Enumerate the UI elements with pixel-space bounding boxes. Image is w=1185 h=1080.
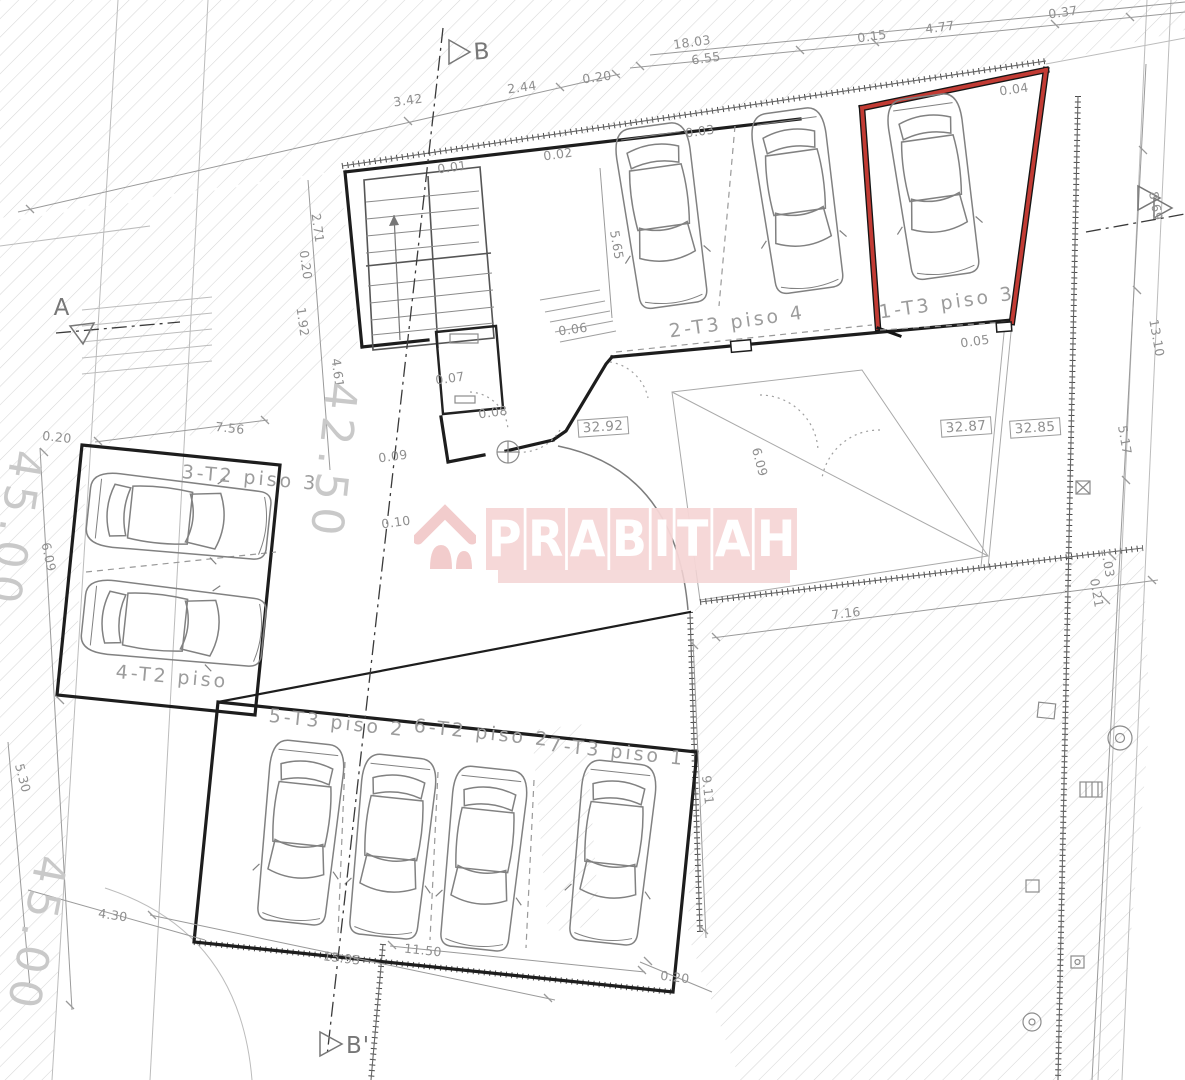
- dim-7-16: 7.16: [830, 604, 861, 622]
- dim-1-92: 1.92: [294, 306, 313, 337]
- dim-0-01: 0.01: [436, 158, 467, 177]
- level-32-87: 32.87: [940, 416, 992, 437]
- dim-8-69: 8.69: [1146, 190, 1166, 222]
- dim-0-10: 0.10: [380, 513, 411, 532]
- dim-15-95: 15.95: [322, 948, 361, 967]
- dim-5-65: 5.65: [607, 229, 627, 261]
- dim-0-04: 0.04: [998, 80, 1029, 99]
- street-level-42-50: 42.50: [299, 379, 367, 544]
- level-32-85: 32.85: [1009, 417, 1061, 438]
- dim-6-09-west: 6.09: [39, 541, 60, 573]
- dim-0-37: 0.37: [1047, 3, 1078, 22]
- section-marker-a: A: [54, 295, 71, 321]
- dim-0-20-west: 0.20: [42, 428, 73, 446]
- dim-5-30: 5.30: [12, 762, 34, 794]
- dim-7-56: 7.56: [215, 419, 246, 437]
- dim-0-05: 0.05: [959, 332, 990, 351]
- dim-0-20-bottom: 0.20: [659, 968, 690, 986]
- space-label-5-t3: 5-T3 piso 2: [268, 705, 406, 741]
- dim-0-03: 0.03: [684, 122, 715, 141]
- dim-1-03: 1.03: [1098, 547, 1118, 579]
- dim-0-21: 0.21: [1087, 577, 1107, 609]
- space-label-2-t3: 2-T3 piso 4: [668, 302, 807, 343]
- dim-18-03: 18.03: [672, 32, 712, 52]
- dim-4-77: 4.77: [924, 18, 955, 37]
- space-label-7-t3: 7-T3 piso 1: [548, 734, 686, 770]
- dim-6-55: 6.55: [690, 49, 721, 68]
- dim-9-11: 9.11: [699, 775, 717, 806]
- floor-plan-page: PRABITAH 18.036.550.154.770.370.203.422.…: [0, 0, 1185, 1080]
- space-label-3-t2: 3-T2 piso 3: [181, 461, 319, 495]
- dim-13-10: 13.10: [1146, 318, 1167, 358]
- street-level-45-00-b: 45.00: [0, 851, 76, 1019]
- dim-0-20-left: 0.20: [297, 249, 316, 280]
- dim-3-42: 3.42: [392, 91, 423, 110]
- space-label-6-t2: 6-T2 piso 2: [413, 715, 551, 751]
- space-label-4-t2: 4-T2 piso: [115, 661, 229, 693]
- street-level-45-00-a: 45.00: [0, 447, 52, 614]
- dim-0-08: 0.08: [477, 403, 508, 422]
- dim-0-07: 0.07: [434, 369, 465, 388]
- space-label-1-t3: 1-T3 piso 3: [878, 283, 1017, 324]
- dim-2-44: 2.44: [506, 78, 537, 97]
- section-marker-b: B: [473, 38, 492, 65]
- dim-5-17: 5.17: [1115, 424, 1135, 456]
- dim-2-71: 2.71: [309, 212, 328, 243]
- dim-0-09: 0.09: [377, 447, 408, 466]
- dim-0-20-top: 0.20: [581, 68, 612, 87]
- dim-6-09-court: 6.09: [749, 446, 771, 478]
- dim-0-15: 0.15: [856, 27, 887, 46]
- dim-0-02: 0.02: [542, 145, 573, 164]
- section-marker-b-prime: B': [346, 1033, 370, 1059]
- labels-layer: 18.036.550.154.770.370.203.422.440.010.0…: [0, 0, 1185, 1080]
- level-32-92: 32.92: [577, 416, 629, 437]
- dim-0-06: 0.06: [557, 320, 588, 339]
- dim-4-30: 4.30: [97, 906, 128, 925]
- dim-11-50: 11.50: [403, 941, 442, 960]
